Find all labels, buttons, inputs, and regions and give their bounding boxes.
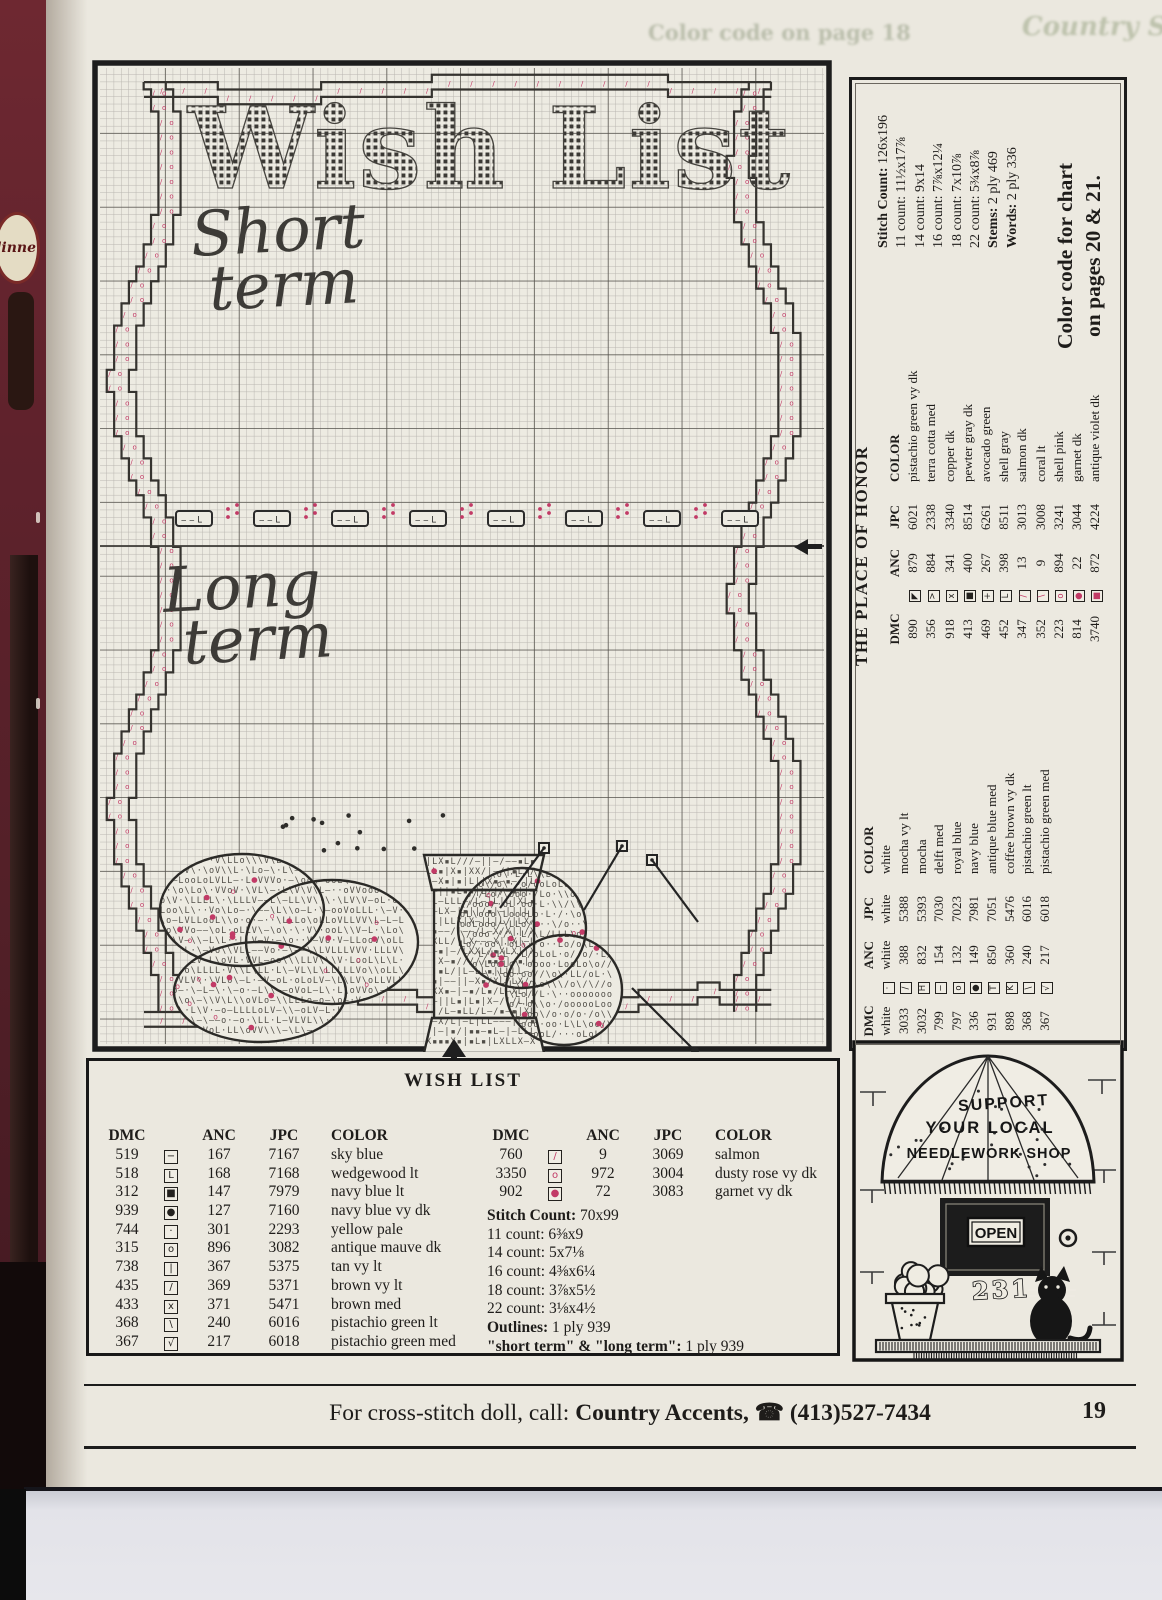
thread-row: 898K3605476coffee brown vy dk xyxy=(1001,662,1019,1042)
footer-rule-top xyxy=(84,1384,1136,1386)
stitch-symbol: x xyxy=(164,1300,178,1314)
surface-below-page xyxy=(24,1487,1162,1600)
ghost-text-right: Country Sampler xyxy=(1022,12,1162,42)
stitch-symbol: x xyxy=(946,590,958,602)
staple-mark xyxy=(36,698,40,709)
stitch-symbol: ● xyxy=(548,1187,562,1201)
svg-text:o: o xyxy=(169,975,173,983)
svg-text:o: o xyxy=(140,709,144,717)
thread-row: 356>8842338terra cotta med xyxy=(922,260,940,650)
svg-text:o: o xyxy=(162,517,166,525)
footer-prefix: For cross-stitch doll, call: xyxy=(329,1400,569,1426)
svg-text:●: ● xyxy=(209,912,217,921)
svg-text:o: o xyxy=(147,695,151,703)
thread-row: 367√2176018pistachio green med xyxy=(1036,662,1054,1042)
svg-text:‒ ‒ L: ‒ ‒ L xyxy=(571,516,592,526)
svg-text:o: o xyxy=(155,252,159,260)
svg-text:o: o xyxy=(140,281,144,289)
stitch-symbol: \ xyxy=(1037,590,1049,602)
street-number: 231 xyxy=(971,1273,1032,1305)
svg-text:o: o xyxy=(745,636,749,644)
stitch-symbol: o xyxy=(548,1169,562,1183)
svg-text:o: o xyxy=(789,399,793,407)
svg-text:●: ● xyxy=(268,990,276,999)
svg-text:o: o xyxy=(752,650,756,658)
thread-row: 519−1677167sky blue xyxy=(101,1146,473,1165)
svg-text:o: o xyxy=(188,936,194,945)
svg-text:●: ● xyxy=(226,973,234,982)
svg-text:●: ● xyxy=(248,1022,256,1031)
cross-stitch-chart: /o/o/o/o/o/o/o/o/o/o/o/o/o/o/o/o/o/o/o/o… xyxy=(92,60,832,1052)
thread-row: 760/93069salmon xyxy=(485,1146,833,1165)
svg-text:o: o xyxy=(745,621,749,629)
svg-text:o: o xyxy=(789,813,793,821)
svg-text:o: o xyxy=(133,311,137,319)
svg-text:o: o xyxy=(169,134,173,142)
footer-phone: (413)527-7434 xyxy=(790,1400,931,1426)
svg-text:o: o xyxy=(782,444,786,452)
svg-text:o: o xyxy=(374,918,380,927)
svg-text:‒ ‒ L: ‒ ‒ L xyxy=(181,516,202,526)
svg-text:o: o xyxy=(486,891,492,900)
svg-text:o: o xyxy=(118,370,122,378)
thread-row: 890◤8796021pistachio green vy dk xyxy=(904,260,922,650)
svg-text:o: o xyxy=(133,872,137,880)
svg-text:·/·L/LLL··L/oLoL·o//o/·L/: ·/·L/LLL··L/oLoL·o//o/·L/ xyxy=(460,950,613,960)
svg-text:●: ● xyxy=(498,953,506,962)
stitch-symbol: √ xyxy=(1041,982,1053,994)
svg-text:●: ● xyxy=(251,875,259,884)
svg-text:‒ ‒ L: ‒ ‒ L xyxy=(493,516,514,526)
svg-text:o: o xyxy=(155,931,159,939)
stitch-symbol: ■ xyxy=(964,590,976,602)
svg-text:o: o xyxy=(125,399,129,407)
svg-text:‒ ‒ L: ‒ ‒ L xyxy=(337,516,358,526)
svg-text:o: o xyxy=(118,798,122,806)
thread-row: 469+2676261avocado green xyxy=(977,260,995,650)
thread-row: 352\93008coral lt xyxy=(1032,260,1050,650)
svg-text:o: o xyxy=(169,178,173,186)
svg-text:o: o xyxy=(775,458,779,466)
svg-text:o: o xyxy=(169,636,173,644)
svg-text:‒ ‒ L: ‒ ‒ L xyxy=(415,516,436,526)
stitch-symbol: √ xyxy=(164,1337,178,1351)
label-short-term: term xyxy=(207,244,361,325)
svg-text:o: o xyxy=(323,966,329,975)
dark-corner xyxy=(0,1489,26,1600)
svg-text:o: o xyxy=(782,739,786,747)
svg-text:o: o xyxy=(155,945,159,953)
svg-text:o: o xyxy=(162,104,166,112)
svg-text:o: o xyxy=(789,385,793,393)
svg-text:o: o xyxy=(125,827,129,835)
stitch-symbol: ● xyxy=(970,982,982,994)
svg-text:‒ ‒ L: ‒ ‒ L xyxy=(259,516,280,526)
sidebar-color-code-note: Color code for chart on pages 20 & 21. xyxy=(1052,77,1108,452)
svg-text:o: o xyxy=(789,798,793,806)
stitch-symbol: H xyxy=(918,982,930,994)
key-title: WISH LIST xyxy=(89,1070,837,1092)
sidebar-title: THE PLACE OF HONOR xyxy=(852,446,872,666)
svg-text:o: o xyxy=(752,960,756,968)
thread-row: 738|3675375tan vy lt xyxy=(101,1258,473,1277)
svg-text:‒ ‒ L: ‒ ‒ L xyxy=(727,516,748,526)
shop-line-2: YOUR LOCAL xyxy=(925,1119,1054,1137)
key-stitch-info: Stitch Count: 70x9911 count: 6⅜x914 coun… xyxy=(487,1207,744,1357)
svg-text:o: o xyxy=(162,960,166,968)
photo-shadow xyxy=(10,555,38,1285)
svg-text:|LX▪L///‒||‒/‒‒▪L▪: |LX▪L///‒||‒/‒‒▪L▪ xyxy=(426,857,536,867)
svg-text:o: o xyxy=(789,355,793,363)
sidebar-color-key: THE PLACE OF HONOR DMCANCJPCCOLORwhite·w… xyxy=(849,77,1127,1051)
svg-text:o: o xyxy=(775,724,779,732)
footer-rule-bottom xyxy=(84,1446,1136,1449)
svg-text:o: o xyxy=(125,857,129,865)
svg-text:o: o xyxy=(789,827,793,835)
svg-text:o: o xyxy=(125,326,129,334)
sidebar-thread-table-2: DMCANCJPCCOLORwhite·whitewhitewhite3033/… xyxy=(860,662,1054,1042)
thread-row: 518L1687168wedgewood lt xyxy=(101,1164,473,1183)
thread-row: 452L3988511shell gray xyxy=(995,260,1013,650)
key-table-right: DMCANCJPCCOLOR760/93069salmon3350o972300… xyxy=(485,1127,833,1202)
stitch-symbol: K xyxy=(1006,982,1018,994)
stitch-symbol: / xyxy=(164,1281,178,1295)
svg-text:o: o xyxy=(147,267,151,275)
sidebar-stitch-counts: Stitch Count: 126x19611 count: 11½x17⅞14… xyxy=(876,115,1023,248)
open-sign-text: OPEN xyxy=(975,1225,1018,1242)
stitch-symbol: ■ xyxy=(164,1187,178,1201)
stitch-symbol: / xyxy=(1019,590,1031,602)
svg-text:o: o xyxy=(767,267,771,275)
thread-row: white·whitewhitewhite xyxy=(878,662,896,1042)
svg-text:o: o xyxy=(745,975,749,983)
svg-text:o: o xyxy=(133,739,137,747)
svg-text:o: o xyxy=(752,665,756,673)
svg-text:o: o xyxy=(118,385,122,393)
svg-text:o\V·\LLLL\·\LLLV‒‒L\‒LL\V\·\·\: o\V·\LLLL\·\LLLV‒‒L\‒LL\V\·\·\LV\V‒oL·o‒ xyxy=(160,896,405,906)
svg-text:o: o xyxy=(169,193,173,201)
thread-row: 3350o9723004dusty rose vy dk xyxy=(485,1164,833,1183)
thread-row: 368\2406016pistachio green lt xyxy=(101,1314,473,1333)
stitch-symbol: > xyxy=(928,590,940,602)
thread-row: 902●723083garnet vy dk xyxy=(485,1183,833,1202)
svg-text:●: ● xyxy=(204,892,212,901)
svg-text:o: o xyxy=(213,1012,219,1021)
svg-text:o: o xyxy=(760,503,764,511)
svg-text:o: o xyxy=(789,340,793,348)
stitch-symbol: ● xyxy=(164,1206,178,1220)
stitch-symbol: o xyxy=(1055,590,1067,602)
stitch-symbol: T xyxy=(988,982,1000,994)
svg-text:o: o xyxy=(789,370,793,378)
thread-row: 3032H8325393mocha xyxy=(913,662,931,1042)
svg-text:o: o xyxy=(789,414,793,422)
stitch-symbol: − xyxy=(164,1150,178,1164)
svg-text:o: o xyxy=(231,887,237,896)
svg-text:o: o xyxy=(169,163,173,171)
svg-text:o: o xyxy=(752,532,756,540)
svg-text:o: o xyxy=(789,768,793,776)
footer-brand: Country Accents, xyxy=(575,1400,749,1426)
svg-text:●: ● xyxy=(286,916,294,925)
stitch-symbol: L xyxy=(1000,590,1012,602)
svg-text:o: o xyxy=(118,813,122,821)
thread-row: 433x3715471brown med xyxy=(101,1295,473,1314)
shop-line-3: NEEDLEWORK SHOP xyxy=(907,1146,1072,1162)
svg-text:Loo\L\··Vo\Lo‒·\‒‒\L\\o‒L·\‒oo: Loo\L\··Vo\Lo‒·\‒‒\L\\o‒L·\‒ooVoLLL·\‒V· xyxy=(160,906,405,916)
stitch-symbol: \ xyxy=(164,1318,178,1332)
adjacent-page-photo: dinne xyxy=(0,0,46,1489)
svg-text:o: o xyxy=(155,503,159,511)
svg-text:o: o xyxy=(782,872,786,880)
svg-text:o: o xyxy=(356,955,362,964)
stitch-symbol: / xyxy=(900,982,912,994)
stitch-symbol: ■ xyxy=(1091,590,1103,602)
svg-text:●: ● xyxy=(210,980,218,989)
stitch-symbol: · xyxy=(164,1225,178,1239)
thread-row: 931T8507051antique blue med xyxy=(983,662,1001,1042)
stitch-symbol: + xyxy=(982,590,994,602)
svg-text:o: o xyxy=(752,237,756,245)
svg-text:o: o xyxy=(760,252,764,260)
thread-row: 435/3695371brown vy lt xyxy=(101,1277,473,1296)
thread-row: 939●1277160navy blue vy dk xyxy=(101,1202,473,1221)
stitch-symbol: o xyxy=(164,1243,178,1257)
svg-text:o: o xyxy=(162,532,166,540)
thread-row: 918x3413340copper dk xyxy=(941,260,959,650)
staple-mark xyxy=(36,512,40,523)
svg-text:o: o xyxy=(125,355,129,363)
svg-text:‒ ‒ L: ‒ ‒ L xyxy=(649,516,670,526)
thread-row: 367√2176018pistachio green med xyxy=(101,1333,473,1352)
thread-row: 368\2406016pistachio green lt xyxy=(1018,662,1036,1042)
stitch-symbol: L xyxy=(164,1169,178,1183)
note-line-1: Color code for chart xyxy=(1052,77,1080,452)
svg-text:\o‒LVLLooL\\o·o·‒··\LLLo\oLLoV: \o‒LVLLooL\\o·o·‒··\LLLo\oLLoVLLVV\L‒L‒L xyxy=(160,916,405,926)
svg-text:●: ● xyxy=(229,929,237,938)
svg-text:o: o xyxy=(745,562,749,570)
svg-text:o: o xyxy=(147,488,151,496)
svg-text:o: o xyxy=(125,340,129,348)
svg-text:o: o xyxy=(125,768,129,776)
svg-text:ooo\LooLo\·oooo·LooLo\o//: ooo\LooLo\·oooo·LooLo\o// xyxy=(460,960,613,970)
svg-text:o: o xyxy=(162,650,166,658)
thread-row: 336●1497981navy blue xyxy=(966,662,984,1042)
svg-text:o: o xyxy=(125,414,129,422)
svg-text:o: o xyxy=(140,473,144,481)
svg-text:o: o xyxy=(789,842,793,850)
svg-text:o: o xyxy=(169,148,173,156)
svg-text:o: o xyxy=(162,222,166,230)
stitch-symbol: | xyxy=(164,1262,178,1276)
svg-text:o: o xyxy=(767,488,771,496)
svg-text:o: o xyxy=(767,709,771,717)
svg-text:o: o xyxy=(775,296,779,304)
svg-text:o: o xyxy=(767,695,771,703)
thread-row: 315o8963082antique mauve dk xyxy=(101,1239,473,1258)
svg-text:o: o xyxy=(169,119,173,127)
wish-list-key-box: WISH LIST DMCANCJPCCOLOR519−1677167sky b… xyxy=(86,1058,840,1356)
svg-text:o: o xyxy=(745,547,749,555)
svg-text:o: o xyxy=(364,980,370,989)
thread-row: 347/133013salmon dk xyxy=(1013,260,1031,650)
svg-text:o: o xyxy=(125,429,129,437)
thread-row: 3033/3885388mocha vy lt xyxy=(895,662,913,1042)
svg-text:o: o xyxy=(738,606,742,614)
thread-row: 797o1327023royal blue xyxy=(948,662,966,1042)
stitch-symbol: ● xyxy=(1073,590,1085,602)
sidebar-rotated-content: THE PLACE OF HONOR DMCANCJPCCOLORwhite·w… xyxy=(852,77,1127,1048)
stitch-symbol: ◤ xyxy=(909,590,921,602)
svg-text:o: o xyxy=(782,326,786,334)
svg-text:o: o xyxy=(140,886,144,894)
svg-text:o: o xyxy=(140,901,144,909)
svg-text:o: o xyxy=(125,754,129,762)
svg-text:o: o xyxy=(752,222,756,230)
svg-text:o: o xyxy=(767,281,771,289)
svg-text:o: o xyxy=(196,974,202,983)
footer-text: For cross-stitch doll, call: Country Acc… xyxy=(200,1398,1060,1427)
svg-text:o: o xyxy=(760,931,764,939)
photo-dark-area xyxy=(0,1262,46,1489)
key-table-left: DMCANCJPCCOLOR519−1677167sky blue518L168… xyxy=(101,1127,473,1351)
page-number: 19 xyxy=(1082,1398,1106,1425)
svg-text:●: ● xyxy=(177,925,185,934)
photo-figure xyxy=(8,292,34,410)
photo-label-text: dinne xyxy=(0,240,36,256)
svg-text:o: o xyxy=(147,916,151,924)
thread-row: 744·3012293yellow pale xyxy=(101,1220,473,1239)
svg-text:●: ● xyxy=(371,934,379,943)
thread-row: 413■4008514pewter gray dk xyxy=(959,260,977,650)
svg-text:o: o xyxy=(760,680,764,688)
svg-text:o: o xyxy=(155,680,159,688)
ghost-text-left: Color code on page 18 xyxy=(648,20,911,45)
thread-row: 312■1477979navy blue lt xyxy=(101,1183,473,1202)
stitch-symbol: o xyxy=(953,982,965,994)
svg-text:o: o xyxy=(125,842,129,850)
svg-text:o: o xyxy=(133,444,137,452)
stitch-symbol: / xyxy=(548,1150,562,1164)
svg-text:o: o xyxy=(767,916,771,924)
note-line-2: on pages 20 & 21. xyxy=(1080,77,1108,452)
svg-text:o: o xyxy=(782,311,786,319)
svg-text:\o\VVo‒‒\oL·oLLV\‒\o\·\·V\·ooL: \o\VVo‒‒\oL·oLLV\‒\o\·\·V\·ooL\\V‒L·\Lo\ xyxy=(160,926,405,936)
svg-text:o: o xyxy=(140,458,144,466)
svg-text:●: ● xyxy=(483,980,491,989)
svg-text:o: o xyxy=(270,912,276,921)
phone-icon: ☎ xyxy=(755,1400,784,1426)
svg-text:●: ● xyxy=(325,933,333,942)
photo-can-label: dinne xyxy=(0,212,40,284)
svg-text:o: o xyxy=(187,999,193,1008)
stitch-symbol: − xyxy=(935,982,947,994)
thread-row: 799−1547030delft med xyxy=(930,662,948,1042)
svg-text:●: ● xyxy=(431,866,439,875)
needlework-shop-ad: SUPPORT YOUR LOCAL NEEDLEWORK SHOP OPEN … xyxy=(852,1040,1124,1362)
svg-text:o: o xyxy=(782,754,786,762)
stitch-symbol: · xyxy=(883,982,895,994)
svg-text:o: o xyxy=(125,783,129,791)
label-long-term: term xyxy=(181,598,335,679)
svg-text:o: o xyxy=(789,783,793,791)
svg-text:o: o xyxy=(738,591,742,599)
stitch-symbol: \ xyxy=(1023,982,1035,994)
